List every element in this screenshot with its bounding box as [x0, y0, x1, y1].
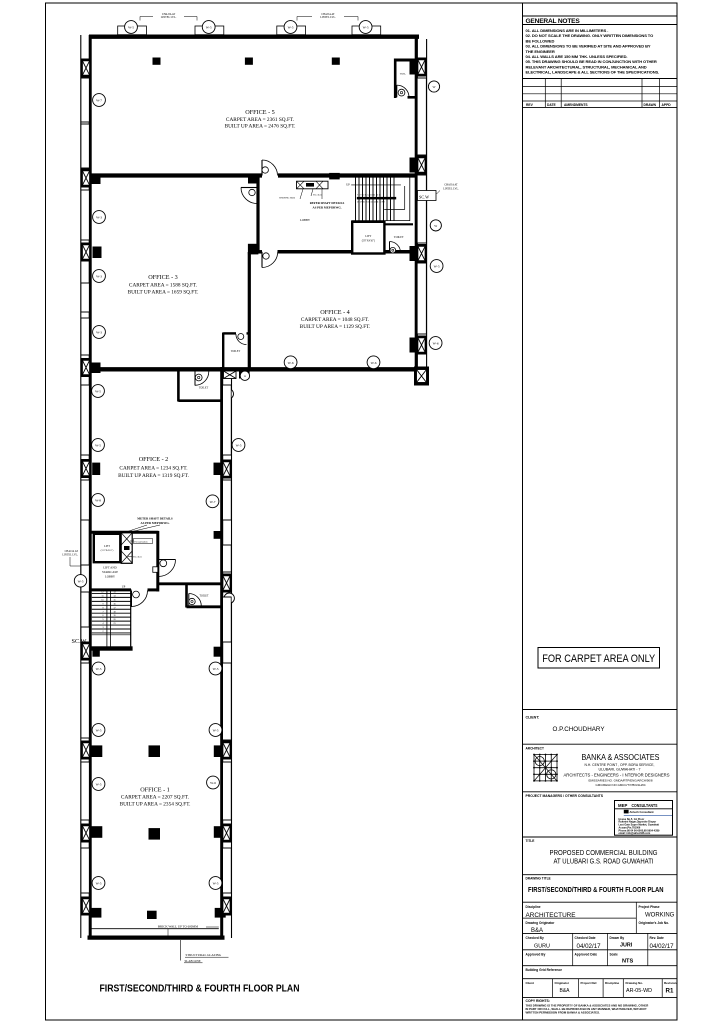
svg-text:DATE: DATE — [547, 103, 557, 107]
svg-text:OFFICE - 1: OFFICE - 1 — [140, 787, 170, 794]
svg-text:Building Grid Reference: Building Grid Reference — [526, 968, 563, 972]
svg-text:GENERAL NOTES: GENERAL NOTES — [526, 18, 581, 25]
svg-text:Client: Client — [526, 981, 534, 985]
svg-text:WRITTEN PERMISSION FROM BANKA: WRITTEN PERMISSION FROM BANKA & ASSOCIAT… — [526, 1011, 601, 1015]
svg-text:Originator's Job No.: Originator's Job No. — [639, 921, 670, 925]
svg-text:LOBBY: LOBBY — [105, 575, 116, 579]
svg-text:OFFICE - 4: OFFICE - 4 — [320, 309, 350, 316]
svg-text:14: 14 — [114, 595, 116, 597]
svg-text:SC.W: SC.W — [419, 194, 429, 199]
svg-text:APPD: APPD — [662, 103, 672, 107]
svg-text:11: 11 — [102, 595, 104, 597]
svg-text:W: W — [432, 85, 435, 89]
svg-text:FIRST/SECOND/THIRD & FOURTH FL: FIRST/SECOND/THIRD & FOURTH FLOOR PLAN — [100, 984, 300, 995]
svg-text:W-6: W-6 — [433, 342, 439, 346]
svg-text:LINTEL LVL.: LINTEL LVL. — [62, 554, 78, 557]
svg-text:(5'0"X4'10"): (5'0"X4'10") — [101, 549, 114, 552]
svg-text:W-3: W-3 — [96, 331, 102, 335]
svg-text:W-5: W-5 — [95, 444, 101, 448]
svg-text:Checked By: Checked By — [526, 936, 544, 940]
svg-text:W-5: W-5 — [236, 444, 242, 448]
svg-text:12: 12 — [101, 592, 103, 594]
svg-text:AT ULUBARI G.S. ROAD GUWAHATI: AT ULUBARI G.S. ROAD GUWAHATI — [554, 858, 654, 865]
svg-text:BUILT UP AREA = 1319 SQ.FT.: BUILT UP AREA = 1319 SQ.FT. — [118, 473, 189, 479]
svg-text:STAIRCASE: STAIRCASE — [102, 570, 118, 574]
svg-text:AS PER MEP DRWG.: AS PER MEP DRWG. — [313, 205, 342, 209]
svg-text:Discipline: Discipline — [526, 905, 541, 909]
svg-text:BUILT UP AREA = 2354 SQ.FT.: BUILT UP AREA = 2354 SQ.FT. — [120, 802, 191, 808]
svg-text:FIRST/SECOND/THIRD & FOURTH FL: FIRST/SECOND/THIRD & FOURTH FLOOR PLAN — [528, 885, 664, 894]
svg-text:BUILT UP AREA = 2476 SQ.FT.: BUILT UP AREA = 2476 SQ.FT. — [225, 124, 296, 130]
svg-text:Revision: Revision — [664, 981, 677, 985]
svg-text:JURI: JURI — [620, 943, 633, 949]
svg-text:B&A: B&A — [560, 988, 571, 994]
svg-text:ELECTRICAL, LANDSCAPE & ALL SE: ELECTRICAL, LANDSCAPE & ALL SECTIONS OF … — [526, 70, 660, 75]
svg-text:W-5: W-5 — [96, 882, 102, 886]
svg-text:Project Ref.: Project Ref. — [581, 981, 598, 985]
svg-text:TOILET: TOILET — [199, 386, 209, 389]
svg-text:GURU: GURU — [534, 944, 550, 950]
svg-text:OPENING SIZE: OPENING SIZE — [279, 197, 296, 200]
svg-text:PROPOSED COMMERCIAL BUILDING: PROPOSED COMMERCIAL BUILDING — [550, 850, 658, 857]
svg-text:Rev. Date: Rev. Date — [650, 936, 665, 940]
svg-text:W-6: W-6 — [288, 361, 294, 365]
svg-text:SLAB LINE: SLAB LINE — [185, 959, 201, 963]
svg-text:TOILET: TOILET — [199, 594, 209, 597]
svg-text:04/02/17: 04/02/17 — [577, 943, 602, 950]
svg-text:CARPET AREA = 2207 SQ.FT.: CARPET AREA = 2207 SQ.FT. — [121, 795, 189, 801]
svg-text:BANKA & ASSOCIATES: BANKA & ASSOCIATES — [582, 753, 660, 762]
svg-text:Scale: Scale — [610, 952, 619, 956]
svg-text:BRICK WALL UP TO 600MM: BRICK WALL UP TO 600MM — [158, 925, 198, 929]
svg-text:OFFICE - 2: OFFICE - 2 — [139, 456, 169, 463]
svg-text:MEP: MEP — [618, 803, 627, 808]
svg-text:9: 9 — [102, 603, 103, 605]
svg-text:DRAWING TITLE: DRAWING TITLE — [526, 877, 551, 881]
svg-text:Airtech Consultant: Airtech Consultant — [630, 810, 654, 814]
svg-text:6: 6 — [102, 615, 103, 617]
svg-text:Fire duct: Fire duct — [133, 555, 142, 558]
svg-text:W-3: W-3 — [96, 216, 102, 220]
svg-text:W-5: W-5 — [78, 579, 84, 583]
svg-text:Drawing No.: Drawing No. — [626, 981, 644, 985]
svg-text:GMC/REGD NO.GMCC/T/7/B/GSH/04: GMC/REGD NO.GMCC/T/7/B/GSH/04 — [596, 783, 646, 787]
svg-text:Project Phase: Project Phase — [639, 905, 660, 909]
svg-text:W-5: W-5 — [96, 783, 102, 787]
svg-text:OFFICE - 3: OFFICE - 3 — [148, 274, 178, 281]
svg-text:R1: R1 — [666, 987, 674, 994]
svg-text:CARPET AREA = 1234 SQ.FT.: CARPET AREA = 1234 SQ.FT. — [119, 466, 187, 472]
svg-text:13: 13 — [114, 592, 116, 594]
svg-text:10: 10 — [101, 599, 103, 601]
svg-text:W-6: W-6 — [371, 361, 377, 365]
svg-text:15: 15 — [114, 599, 116, 601]
svg-text:18: 18 — [114, 611, 116, 613]
svg-text:ARCHITECT: ARCHITECT — [526, 746, 544, 750]
svg-text:5: 5 — [102, 619, 103, 621]
svg-text:W-5: W-5 — [128, 26, 134, 30]
svg-text:ULUBARI, GUWAHATI - 7: ULUBARI, GUWAHATI - 7 — [599, 768, 641, 772]
svg-text:Approved By: Approved By — [526, 952, 546, 956]
svg-text:O.P.CHOUDHARY: O.P.CHOUDHARY — [553, 726, 606, 733]
svg-text:20: 20 — [114, 619, 116, 621]
svg-text:21: 21 — [114, 623, 116, 625]
svg-text:W-5: W-5 — [206, 26, 212, 30]
svg-text:LINTEL LVL.: LINTEL LVL. — [161, 16, 177, 19]
svg-text:Drawing Originator: Drawing Originator — [526, 921, 556, 925]
svg-text:3: 3 — [102, 627, 103, 629]
svg-text:CARPET AREA = 1588 SQ.FT.: CARPET AREA = 1588 SQ.FT. — [129, 283, 197, 289]
svg-text:CARPET AREA = 2361 SQ.FT.: CARPET AREA = 2361 SQ.FT. — [226, 117, 294, 123]
svg-text:TOILET: TOILET — [231, 350, 241, 353]
svg-text:Approved Date: Approved Date — [575, 952, 598, 956]
svg-text:CHAJJA AT: CHAJJA AT — [444, 184, 458, 187]
svg-text:TOIL.: TOIL. — [400, 73, 407, 76]
svg-text:Fire duct: Fire duct — [313, 194, 322, 197]
svg-text:Checked Date: Checked Date — [575, 936, 596, 940]
svg-text:CLIENT:: CLIENT: — [526, 716, 540, 720]
svg-text:7 8 9 10 11 12 13 14 15 16: 7 8 9 10 11 12 13 14 15 16 — [357, 194, 382, 196]
svg-text:TITLE: TITLE — [526, 839, 535, 843]
svg-text:LIFT: LIFT — [365, 235, 371, 238]
svg-text:7: 7 — [102, 611, 103, 613]
svg-text:8: 8 — [102, 607, 103, 609]
svg-text:LIFT AND: LIFT AND — [103, 566, 117, 570]
svg-text:REV: REV — [526, 103, 534, 107]
svg-text:LINTEL LVL.: LINTEL LVL. — [443, 187, 459, 190]
svg-text:W-7: W-7 — [96, 99, 102, 103]
svg-text:(5'0"X4'10"): (5'0"X4'10") — [362, 239, 375, 242]
svg-text:AR-05-WD: AR-05-WD — [626, 988, 652, 994]
svg-text:2: 2 — [102, 631, 103, 633]
svg-text:OFFICE - 5: OFFICE - 5 — [245, 109, 275, 116]
svg-text:W-3: W-3 — [96, 275, 102, 279]
svg-text:PROJECT MANAGERS / OTHER CONSU: PROJECT MANAGERS / OTHER CONSULTANTS — [526, 794, 604, 798]
svg-text:COPY RIGHTS:: COPY RIGHTS: — [526, 999, 550, 1003]
svg-text:N.H. CENTRE POINT , OPP. BORA: N.H. CENTRE POINT , OPP. BORA SERVICE, — [585, 763, 655, 767]
svg-text:W-5: W-5 — [213, 729, 219, 733]
svg-text:UP: UP — [346, 183, 350, 186]
svg-text:W-5: W-5 — [288, 26, 294, 30]
svg-text:W-5: W-5 — [213, 882, 219, 886]
svg-text:CARPET AREA = 1048 SQ.FT.: CARPET AREA = 1048 SQ.FT. — [301, 317, 369, 323]
svg-text:19: 19 — [114, 615, 116, 617]
svg-text:CHAJJA AT: CHAJJA AT — [65, 550, 79, 553]
svg-text:ARCHITECTS - ENGINEERS - I NTE: ARCHITECTS - ENGINEERS - I NTERIOR DESIG… — [564, 772, 670, 777]
svg-text:UP: UP — [122, 585, 126, 588]
svg-text:TOILET: TOILET — [394, 236, 404, 239]
svg-text:W-6: W-6 — [210, 781, 216, 785]
svg-text:DRAWN: DRAWN — [644, 103, 657, 107]
svg-text:W-5: W-5 — [213, 667, 219, 671]
svg-text:FOR CARPET AREA ONLY: FOR CARPET AREA ONLY — [542, 653, 655, 665]
svg-text:17: 17 — [114, 607, 116, 609]
svg-text:LINTEL LVL.: LINTEL LVL. — [320, 16, 336, 19]
svg-text:email: info@airtech06.com: email: info@airtech06.com — [619, 832, 652, 835]
svg-text:Drawn By: Drawn By — [610, 936, 625, 940]
svg-text:AS PER MEP DRWG.: AS PER MEP DRWG. — [141, 521, 170, 525]
svg-text:SC.W: SC.W — [72, 638, 87, 645]
svg-text:LOBBY: LOBBY — [300, 218, 311, 222]
svg-text:NTS: NTS — [622, 959, 633, 965]
svg-text:AMENDMENTS: AMENDMENTS — [564, 103, 588, 107]
svg-text:W-5: W-5 — [363, 26, 369, 30]
svg-text:W-5: W-5 — [96, 667, 102, 671]
svg-text:EMISSARIES NO. GMDA/RTP/ENG/AR: EMISSARIES NO. GMDA/RTP/ENG/ARCH/90/8 — [589, 778, 653, 782]
svg-text:BUILT UP AREA = 1129 SQ.FT.: BUILT UP AREA = 1129 SQ.FT. — [300, 324, 371, 330]
svg-text:CONSULTANTS: CONSULTANTS — [632, 803, 658, 808]
svg-text:WORKING: WORKING — [645, 913, 675, 919]
svg-text:4: 4 — [102, 623, 103, 625]
svg-text:BUILT UP AREA = 1659 SQ.FT.: BUILT UP AREA = 1659 SQ.FT. — [128, 290, 199, 296]
svg-text:16: 16 — [114, 603, 116, 605]
svg-text:W-5: W-5 — [434, 265, 440, 269]
svg-text:W-7: W-7 — [210, 500, 216, 504]
svg-text:W-5: W-5 — [96, 729, 102, 733]
svg-text:W: W — [434, 224, 437, 228]
svg-text:Discipline: Discipline — [605, 981, 620, 985]
svg-text:04/02/17: 04/02/17 — [650, 943, 675, 950]
svg-text:Pressurization: Pressurization — [135, 541, 149, 543]
svg-text:W-5: W-5 — [95, 390, 101, 394]
svg-text:18 17 16 15 14 13 12 11 10 9 8: 18 17 16 15 14 13 12 11 10 9 8 — [357, 202, 386, 204]
svg-text:W-8: W-8 — [95, 499, 101, 503]
svg-text:STRUCTURAL GLAZING: STRUCTURAL GLAZING — [186, 953, 222, 957]
svg-text:LIFT: LIFT — [104, 545, 110, 548]
svg-text:Originator: Originator — [555, 981, 570, 985]
